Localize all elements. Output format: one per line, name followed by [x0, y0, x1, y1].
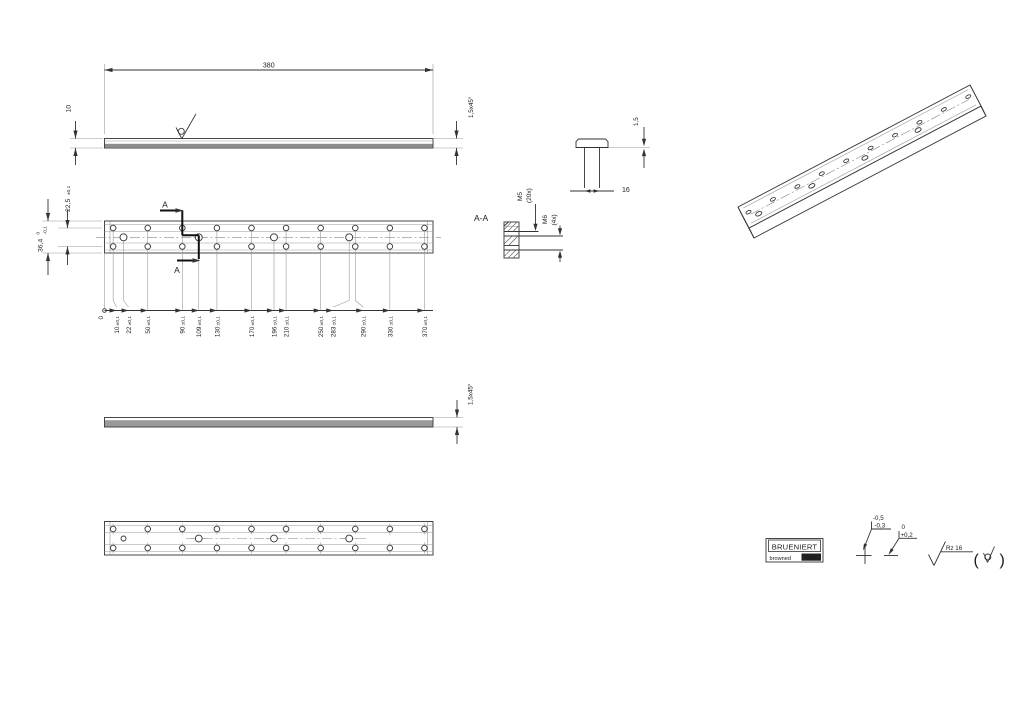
hole-m5: [249, 244, 255, 250]
hole-m5: [387, 225, 393, 231]
dim-22-5-label: 22,5: [65, 199, 72, 212]
dim-10-label: 10: [66, 105, 73, 113]
thread-m6-count: (4x): [551, 214, 558, 225]
dim-380: 380: [105, 62, 434, 134]
dim-chamfer-top: 1,5x45°: [434, 96, 475, 165]
hole-m5: [214, 225, 220, 231]
hole-m6: [195, 535, 202, 542]
stamp-title: BRUENIERT: [772, 542, 818, 551]
hole-m5: [318, 545, 324, 551]
ordinate-dim-label: 50 ±0,1: [145, 316, 152, 334]
hole-m6: [121, 536, 126, 541]
iso-view: [738, 85, 986, 238]
hole-m5: [180, 545, 186, 551]
stamp-code: 001: [807, 555, 816, 561]
hole-m5: [422, 526, 428, 532]
surface-roughness-value: Rz 16: [946, 545, 963, 552]
side-view-shade: [105, 420, 433, 426]
thread-callout-m6: M6 (4x): [542, 214, 562, 262]
iso-front-face: [749, 106, 986, 238]
dim-380-label: 380: [263, 62, 275, 69]
thread-callout-m5: M5 (20x): [517, 188, 538, 231]
ordinate-dim-label: 0: [98, 316, 105, 320]
finish-stamp: BRUENIERT browned 001: [766, 539, 823, 563]
hole-m5: [422, 244, 428, 250]
hole-m5: [110, 526, 116, 532]
hole-m5: [352, 526, 358, 532]
hole-m5: [145, 545, 151, 551]
hole-m6: [271, 535, 278, 542]
hole-m5: [214, 526, 220, 532]
top-view: 380 10 1,5x45°: [66, 62, 476, 165]
thread-m5-label: M5: [517, 192, 524, 201]
hole-m5: [422, 225, 428, 231]
engineering-drawing: 380 10 1,5x45°: [0, 0, 1024, 724]
paren-open: (: [974, 552, 980, 569]
ordinate-dim-label: 250 ±0,1: [318, 316, 325, 337]
dim-1-5: 1,5: [609, 117, 651, 168]
ordinate-dim-label: 370 ±0,1: [422, 316, 429, 337]
hole-m6: [346, 234, 353, 241]
hole-m5: [214, 545, 220, 551]
hole-m5: [352, 244, 358, 250]
iso-top-face: [738, 85, 981, 228]
hole-m5: [145, 225, 151, 231]
hole-m5: [387, 526, 393, 532]
section-letter-top: A: [162, 200, 168, 210]
hole-m5: [110, 225, 116, 231]
paren-close: ): [1000, 552, 1005, 569]
hole-m5: [145, 244, 151, 250]
hole-m5: [249, 545, 255, 551]
ordinate-dim-label: 130 ±0,1: [214, 316, 221, 337]
hole-m5: [110, 545, 116, 551]
hole-m5: [318, 225, 324, 231]
hole-m5: [249, 225, 255, 231]
stamp-subtitle: browned: [770, 556, 791, 562]
ordinate-leader-bend: [124, 301, 129, 308]
ordinate-leader-bend: [355, 301, 363, 308]
edge1-upper: -0,5: [873, 515, 884, 522]
ordinate-leader-bend: [333, 301, 349, 308]
end-view-cap: [576, 139, 608, 148]
iso-groove-line: [743, 90, 968, 208]
surface-finish-note: Rz 16 ( ): [929, 542, 1005, 570]
hole-m6: [270, 234, 277, 241]
ordinate-dim-label: 210 ±0,1: [283, 316, 290, 337]
hole-m5: [180, 526, 186, 532]
hole-m5: [110, 244, 116, 250]
edge-tolerance-symbol-1: -0,5 -0,3: [856, 515, 891, 564]
hole-m5: [283, 244, 289, 250]
edge1-lower: -0,3: [875, 523, 886, 530]
dim-chamfer-side: 1,5x45°: [434, 383, 475, 444]
bottom-view: [105, 522, 434, 556]
hole-m5: [180, 244, 186, 250]
ordinate-dim-label: 109 ±0,1: [196, 316, 203, 337]
hole-m5: [318, 244, 324, 250]
iso-groove-line: [751, 105, 976, 223]
end-view: 16 1,5: [570, 117, 650, 194]
dim-36-4-tol-upper: 0: [35, 232, 41, 235]
hole-m6: [346, 535, 353, 542]
dim-chamfer-top-label: 1,5x45°: [467, 96, 475, 118]
hole-m6: [120, 234, 127, 241]
hole-m5: [352, 225, 358, 231]
edge2-lower: +0,2: [901, 532, 914, 539]
ordinate-dim-label: 290 ±0,1: [361, 316, 368, 337]
ordinate-dim-label: 170 ±0,1: [249, 316, 256, 337]
ordinate-dim-label: 330 ±0,1: [387, 316, 394, 337]
surface-finish-icon: [176, 114, 196, 139]
hole-m5: [422, 545, 428, 551]
front-view: 010 ±0,122 ±0,150 ±0,190 ±0,1109 ±0,1130…: [35, 185, 441, 337]
ordinate-dim-label: 196 ±0,1: [271, 316, 278, 337]
hole-m5: [387, 244, 393, 250]
dim-1-5-label: 1,5: [633, 117, 640, 126]
thread-m5-count: (20x): [526, 188, 533, 203]
hole-m5: [283, 225, 289, 231]
ordinate-dim-label: 22 ±0,1: [126, 316, 133, 334]
hole-m5: [283, 545, 289, 551]
hole-m5: [283, 526, 289, 532]
section-view: A-A M5 (20x): [474, 188, 563, 262]
dim-36-4-label: 36,4: [38, 239, 45, 252]
notes: BRUENIERT browned 001 -0,5 -0,3 0 +0,2: [766, 515, 1005, 569]
hole-m5: [352, 545, 358, 551]
ordinate-dim-label: 283 ±0,1: [331, 316, 338, 337]
dim-22-5-tol: ±0,1: [66, 185, 72, 195]
iso-centerline: [751, 100, 969, 215]
hole-m5: [318, 526, 324, 532]
dim-10: 10: [66, 105, 104, 165]
ordinate-leader-bend: [113, 301, 116, 308]
dim-36-4-tol-lower: -0,1: [42, 226, 48, 235]
ordinate-dim-label: 10 ±0,1: [114, 316, 121, 334]
hole-m5: [249, 526, 255, 532]
surface-finish-icon-small: [984, 547, 995, 563]
side-view: 1,5x45°: [105, 383, 475, 444]
hole-m5: [214, 244, 220, 250]
top-view-shade: [105, 144, 433, 148]
section-letter-bottom: A: [174, 265, 180, 275]
dim-16: 16: [570, 187, 630, 194]
thread-m6-label: M6: [542, 215, 549, 224]
hole-m5: [145, 526, 151, 532]
section-view-label: A-A: [474, 213, 489, 223]
ordinate-dim-label: 90 ±0,1: [180, 316, 187, 334]
dim-chamfer-side-label: 1,5x45°: [467, 383, 475, 405]
edge2-upper: 0: [902, 524, 906, 531]
hole-m5: [387, 545, 393, 551]
dim-16-label: 16: [622, 187, 630, 194]
